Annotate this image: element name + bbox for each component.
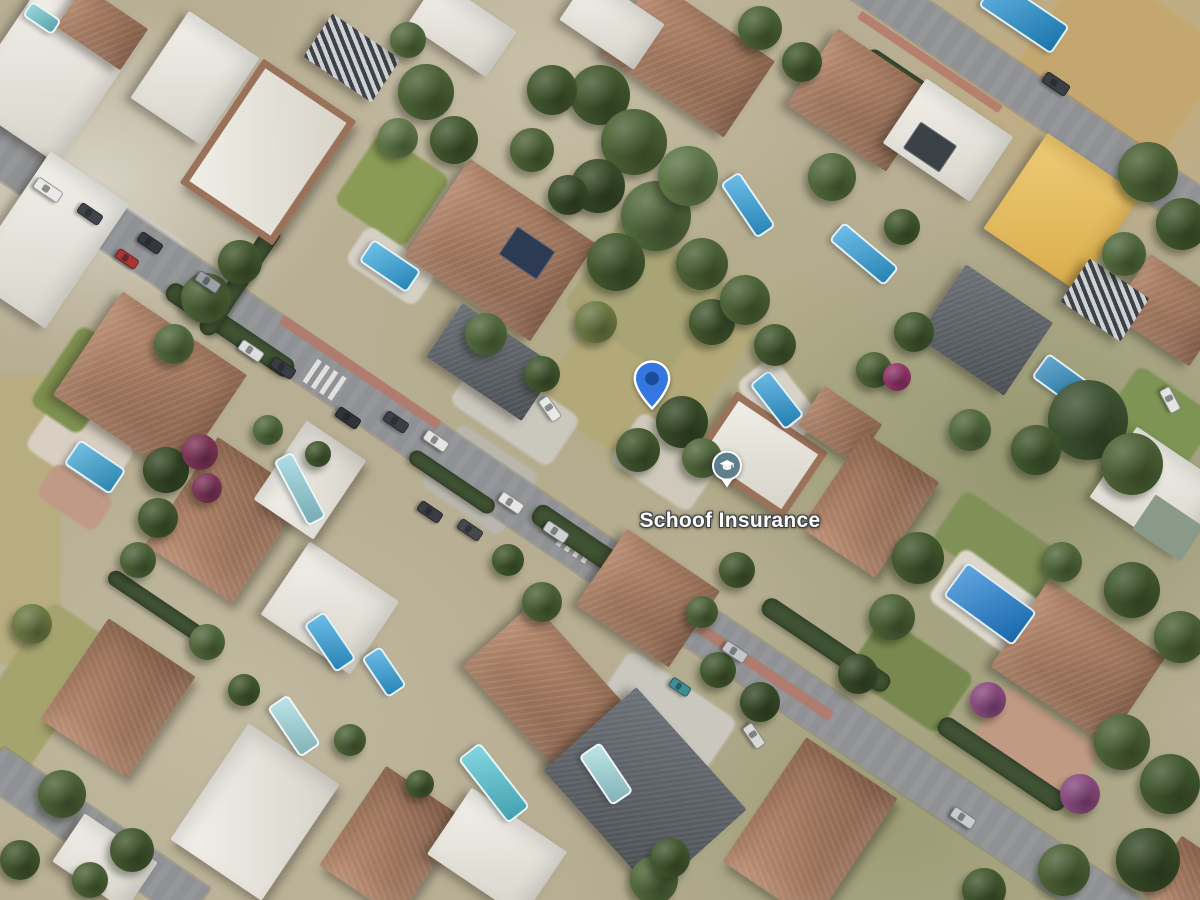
tree (406, 770, 434, 798)
tree (676, 238, 728, 290)
tree (334, 724, 366, 756)
tree (510, 128, 554, 172)
tree (1102, 232, 1146, 276)
tree (378, 118, 418, 158)
tree (883, 363, 911, 391)
tree (1038, 844, 1090, 896)
poi-label[interactable]: Schoof Insurance (639, 509, 820, 533)
satellite-map[interactable]: Schoof Insurance (0, 0, 1200, 900)
tree (894, 312, 934, 352)
tree (522, 582, 562, 622)
tree (719, 552, 755, 588)
school-icon (712, 451, 742, 481)
tree (182, 434, 218, 470)
tree (120, 542, 156, 578)
tree (782, 42, 822, 82)
tree (72, 862, 108, 898)
tree (1094, 714, 1150, 770)
tree (154, 324, 194, 364)
tree (1154, 611, 1200, 663)
tree (1060, 774, 1100, 814)
tree (253, 415, 283, 445)
tree (398, 64, 454, 120)
poi-marker-tail (721, 479, 733, 488)
tree (754, 324, 796, 366)
tree (970, 682, 1006, 718)
tree (218, 240, 262, 284)
poi-marker[interactable] (710, 451, 744, 495)
tree (808, 153, 856, 201)
tree (650, 838, 690, 878)
tree (720, 275, 770, 325)
map-pin[interactable] (633, 360, 671, 415)
tree (1042, 542, 1082, 582)
tree (1118, 142, 1178, 202)
swimming-pool (720, 171, 776, 239)
graduation-cap-glyph (719, 458, 735, 474)
tree (492, 544, 524, 576)
tree (1101, 433, 1163, 495)
tree (228, 674, 260, 706)
tree (962, 868, 1006, 900)
tree (949, 409, 991, 451)
tree (738, 6, 782, 50)
tree (524, 356, 560, 392)
tree (838, 654, 878, 694)
car (416, 500, 444, 524)
tree (892, 532, 944, 584)
swimming-pool (361, 646, 407, 699)
tree (869, 594, 915, 640)
tree (305, 441, 331, 467)
tree (740, 682, 780, 722)
tree (700, 652, 736, 688)
tree (110, 828, 154, 872)
tree (390, 22, 426, 58)
building-roof (170, 723, 339, 900)
tree (12, 604, 52, 644)
tree (587, 233, 645, 291)
tree (1116, 828, 1180, 892)
tree (1104, 562, 1160, 618)
tree (575, 301, 617, 343)
tree (658, 146, 718, 206)
tree (884, 209, 920, 245)
tree (686, 596, 718, 628)
tree (189, 624, 225, 660)
tree (1011, 425, 1061, 475)
tree (1140, 754, 1200, 814)
tree (192, 473, 222, 503)
pin-icon (633, 360, 671, 410)
tree (430, 116, 478, 164)
car (742, 722, 767, 750)
tree (138, 498, 178, 538)
tree (465, 313, 507, 355)
tree (527, 65, 577, 115)
tree (616, 428, 660, 472)
tree (548, 175, 588, 215)
tree (1156, 198, 1200, 250)
tree (0, 840, 40, 880)
tree (38, 770, 86, 818)
building-roof (303, 14, 400, 103)
